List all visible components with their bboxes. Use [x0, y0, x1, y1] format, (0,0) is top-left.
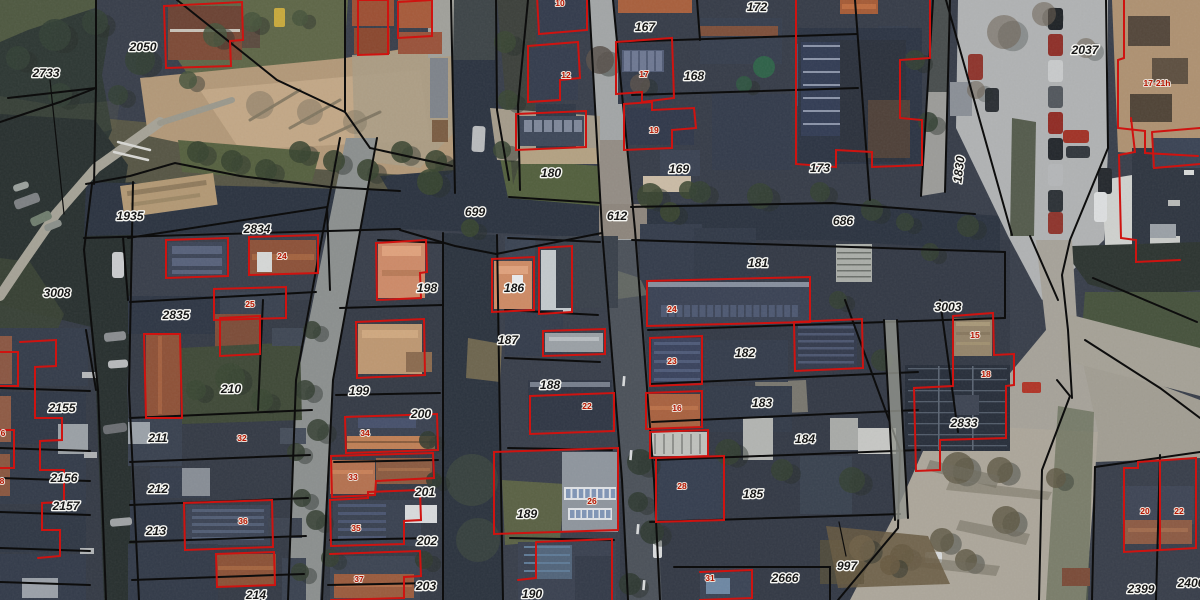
svg-text:169: 169: [669, 162, 690, 176]
svg-text:211: 211: [147, 431, 168, 445]
svg-text:183: 183: [752, 396, 773, 410]
svg-text:32: 32: [237, 433, 247, 443]
svg-text:23: 23: [667, 356, 677, 366]
svg-text:1935: 1935: [116, 209, 143, 223]
svg-text:16: 16: [672, 403, 682, 413]
svg-text:186: 186: [504, 281, 525, 295]
svg-text:2156: 2156: [49, 471, 77, 485]
svg-text:2400: 2400: [1176, 576, 1200, 590]
svg-text:190: 190: [522, 587, 543, 600]
svg-text:34: 34: [360, 428, 370, 438]
svg-text:24: 24: [277, 251, 287, 261]
svg-text:2399: 2399: [1126, 582, 1154, 596]
svg-text:22: 22: [582, 401, 592, 411]
svg-text:2157: 2157: [51, 499, 80, 513]
svg-text:200: 200: [410, 407, 432, 421]
svg-text:173: 173: [810, 161, 831, 175]
svg-text:997: 997: [837, 559, 859, 573]
svg-text:167: 167: [635, 20, 657, 34]
svg-text:202: 202: [416, 534, 438, 548]
svg-text:2050: 2050: [128, 40, 156, 54]
svg-text:2834: 2834: [242, 222, 270, 236]
svg-text:2155: 2155: [47, 401, 75, 415]
svg-text:26: 26: [587, 496, 597, 506]
svg-text:3008: 3008: [43, 286, 70, 300]
svg-text:36: 36: [238, 516, 248, 526]
svg-text:189: 189: [517, 507, 538, 521]
svg-text:37: 37: [354, 574, 364, 584]
svg-text:25: 25: [245, 299, 255, 309]
svg-text:168: 168: [684, 69, 705, 83]
svg-text:20: 20: [1140, 506, 1150, 516]
svg-text:35: 35: [351, 523, 361, 533]
svg-text:31: 31: [705, 573, 715, 583]
svg-text:2833: 2833: [949, 416, 977, 430]
svg-text:188: 188: [540, 378, 561, 392]
svg-text:184: 184: [795, 432, 816, 446]
svg-text:2666: 2666: [770, 571, 798, 585]
svg-text:210: 210: [220, 382, 242, 396]
svg-text:28: 28: [677, 481, 687, 491]
svg-text:212: 212: [147, 482, 169, 496]
svg-text:180: 180: [541, 166, 562, 180]
svg-text:182: 182: [735, 346, 756, 360]
svg-text:214: 214: [245, 588, 267, 600]
svg-text:2835: 2835: [161, 308, 189, 322]
svg-text:198: 198: [417, 281, 438, 295]
svg-text:185: 185: [743, 487, 764, 501]
svg-text:181: 181: [748, 256, 769, 270]
svg-text:612: 612: [607, 209, 628, 223]
svg-text:19: 19: [649, 125, 659, 135]
svg-text:24: 24: [667, 304, 677, 314]
svg-text:172: 172: [747, 0, 768, 14]
svg-text:33: 33: [348, 472, 358, 482]
svg-text:187: 187: [498, 333, 520, 347]
svg-text:3003: 3003: [934, 300, 961, 314]
svg-text:203: 203: [415, 579, 437, 593]
svg-text:213: 213: [145, 524, 167, 538]
svg-text:22: 22: [1174, 506, 1184, 516]
svg-text:15: 15: [970, 330, 980, 340]
svg-text:12: 12: [561, 70, 571, 80]
svg-text:17: 17: [639, 69, 649, 79]
svg-text:18: 18: [981, 369, 991, 379]
svg-text:699: 699: [465, 205, 486, 219]
svg-text:686: 686: [833, 214, 854, 228]
svg-text:8: 8: [0, 476, 5, 486]
svg-text:17-21h: 17-21h: [1144, 78, 1171, 88]
svg-text:6: 6: [1, 428, 6, 438]
svg-text:201: 201: [414, 485, 436, 499]
svg-text:199: 199: [349, 384, 370, 398]
svg-text:2037: 2037: [1070, 43, 1099, 57]
svg-text:10: 10: [555, 0, 565, 8]
svg-text:2733: 2733: [31, 66, 59, 80]
